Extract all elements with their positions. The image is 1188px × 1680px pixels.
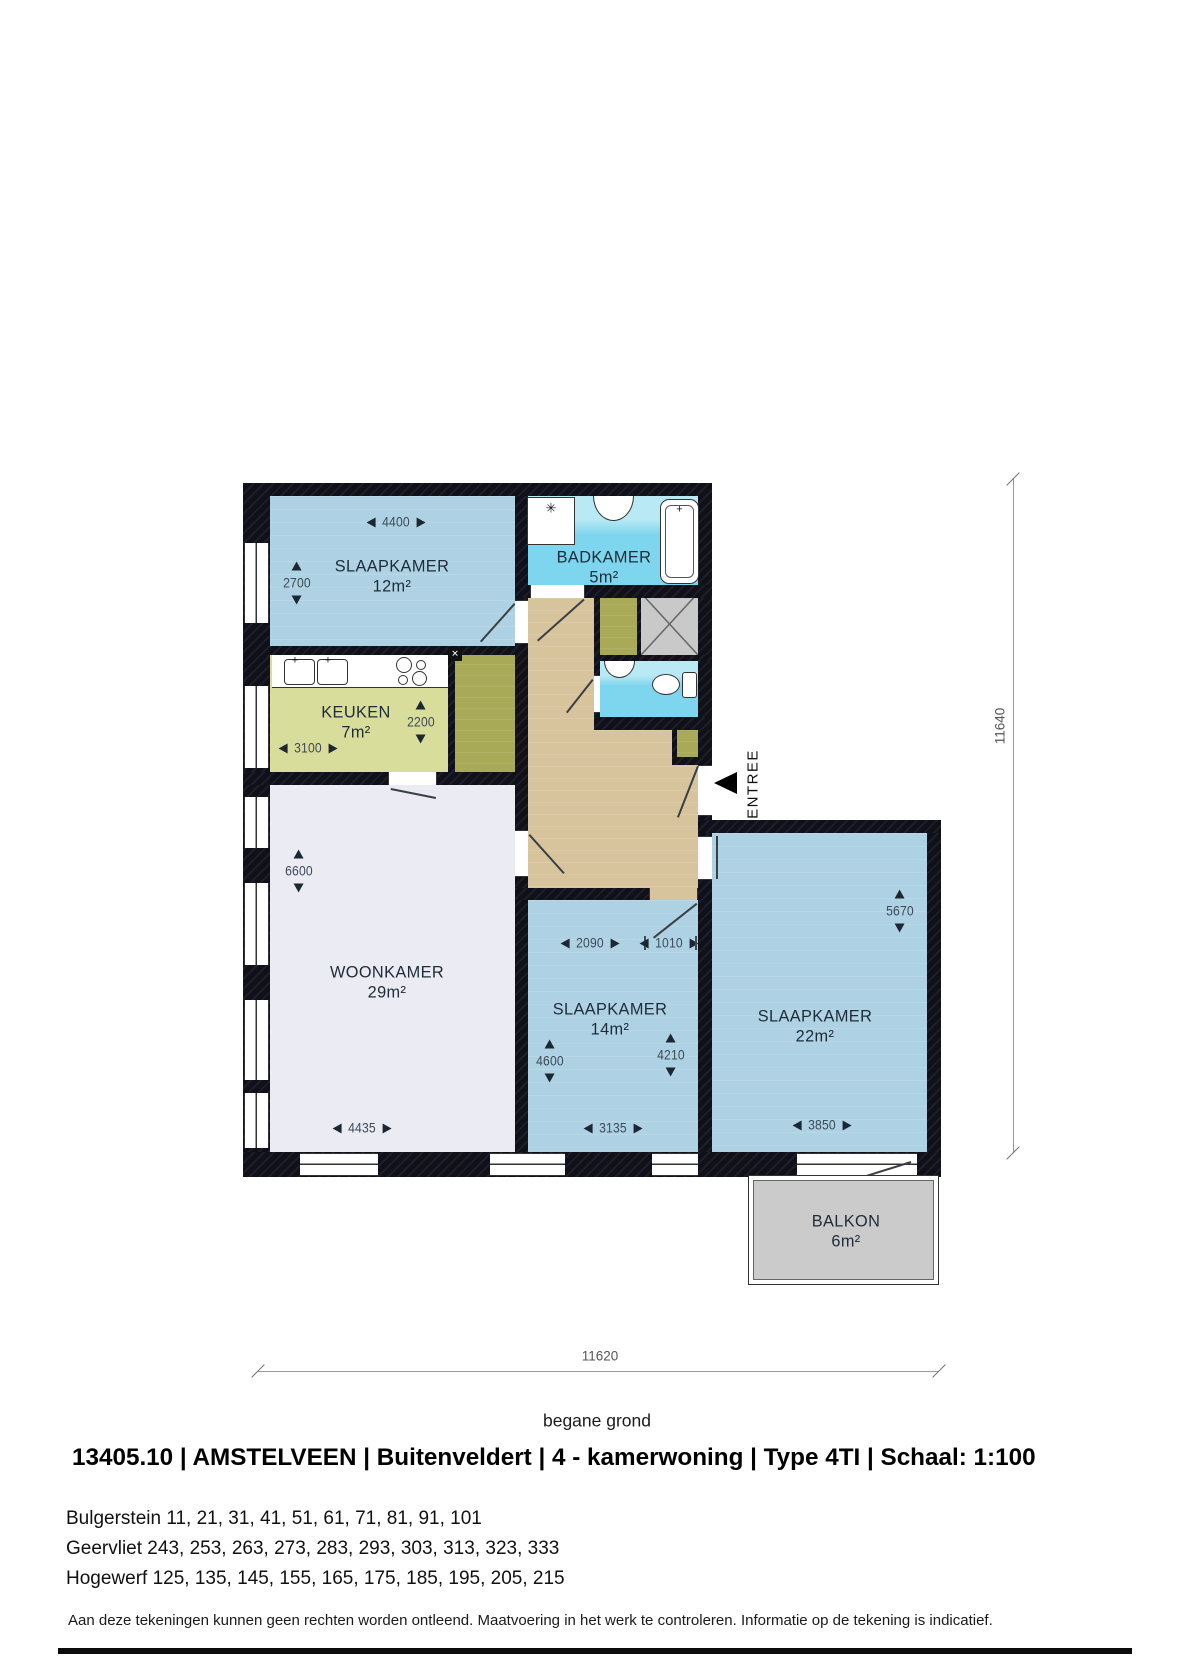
dim-arrow-up-icon bbox=[292, 562, 302, 571]
door-living bbox=[515, 830, 528, 877]
drawing-title: 13405.10 | AMSTELVEEN | Buitenveldert | … bbox=[72, 1444, 1121, 1472]
dim-arrow-left-icon bbox=[561, 938, 570, 948]
door-leaf bbox=[716, 836, 718, 879]
closet-fill bbox=[600, 593, 637, 655]
address-list: Bulgerstein 11, 21, 31, 41, 51, 61, 71, … bbox=[66, 1504, 565, 1594]
wall-smallcloset bbox=[672, 757, 712, 765]
dim-arrow-up-icon bbox=[895, 890, 905, 899]
dim-arrow-down-icon bbox=[294, 884, 304, 893]
dim-arrow-left-icon bbox=[584, 1123, 593, 1133]
dim-arrow-left-icon bbox=[793, 1120, 802, 1130]
entrance-label: ENTREE bbox=[745, 749, 762, 819]
stove-icon bbox=[398, 675, 408, 685]
wall-bed2-bed3 bbox=[698, 833, 712, 1152]
window bbox=[244, 1093, 269, 1148]
label-balcony: BALKON 6m² bbox=[810, 1212, 881, 1251]
dim-bedroom3-depth: 5670 bbox=[885, 890, 916, 933]
dim-arrow-down-icon bbox=[895, 924, 905, 933]
dim-arrow-up-icon bbox=[416, 701, 426, 710]
label-bedroom2: SLAAPKAMER 14m² bbox=[550, 1000, 669, 1039]
dim-total-depth: 11640 bbox=[993, 708, 1008, 745]
dim-bedroom2-depth-left: 4600 bbox=[535, 1040, 566, 1083]
dim-arrow-right-icon bbox=[328, 743, 337, 753]
label-bedroom3: SLAAPKAMER 22m² bbox=[755, 1007, 874, 1046]
dim-bedroom2-depth-right: 4210 bbox=[656, 1034, 687, 1077]
address-line: Hogewerf 125, 135, 145, 155, 165, 175, 1… bbox=[66, 1564, 565, 1594]
kitchen-sink-icon: + bbox=[317, 659, 348, 685]
wall-top bbox=[243, 483, 712, 496]
door-entrance bbox=[698, 765, 712, 816]
address-line: Bulgerstein 11, 21, 31, 41, 51, 61, 71, … bbox=[66, 1504, 565, 1534]
boiler-icon: ✕ bbox=[448, 647, 462, 661]
shaft-fill bbox=[641, 593, 698, 655]
dim-arrow-down-icon bbox=[416, 735, 426, 744]
dim-hall-passage: 1010 bbox=[640, 936, 699, 951]
dim-extension-line bbox=[695, 936, 697, 950]
label-living: WOONKAMER 29m² bbox=[328, 963, 447, 1002]
label-kitchen: KEUKEN 7m² bbox=[320, 703, 392, 742]
dim-line-total-width bbox=[258, 1371, 939, 1372]
dim-arrow-right-icon bbox=[689, 938, 698, 948]
dim-living-depth: 6600 bbox=[284, 850, 315, 893]
disclaimer-text: Aan deze tekeningen kunnen geen rechten … bbox=[68, 1612, 993, 1629]
dim-kitchen-depth: 2200 bbox=[406, 701, 437, 744]
wall-smallcloset bbox=[672, 730, 677, 757]
dim-arrow-up-icon bbox=[294, 850, 304, 859]
wall-right-outer bbox=[927, 833, 941, 1177]
room-bedroom3-fill bbox=[712, 833, 927, 1152]
wall-closet-shaft bbox=[637, 593, 641, 655]
toilet-icon bbox=[652, 674, 680, 695]
door-bedroom2 bbox=[649, 888, 698, 900]
window bbox=[300, 1153, 378, 1176]
window bbox=[244, 686, 269, 768]
dim-arrow-down-icon bbox=[292, 596, 302, 605]
entrance-arrow-icon bbox=[714, 772, 737, 794]
door-bedroom1 bbox=[515, 600, 528, 644]
floor-plan: ✳ + + + ✕ ENTREE SL bbox=[0, 0, 1188, 1460]
dim-arrow-down-icon bbox=[666, 1068, 676, 1077]
dim-arrow-left-icon bbox=[367, 517, 376, 527]
dim-arrow-up-icon bbox=[666, 1034, 676, 1043]
wall-toilet-bottom bbox=[594, 717, 712, 730]
bathtub-icon: + bbox=[660, 499, 699, 584]
dim-bedroom1-width: 4400 bbox=[367, 515, 426, 530]
door-toilet bbox=[594, 675, 600, 713]
window bbox=[244, 883, 269, 965]
dim-bedroom2-top: 2090 bbox=[561, 936, 620, 951]
dim-arrow-right-icon bbox=[416, 517, 425, 527]
dim-arrow-right-icon bbox=[610, 938, 619, 948]
dim-living-width: 4435 bbox=[333, 1121, 392, 1136]
stove-icon bbox=[396, 657, 412, 673]
dim-bedroom2-width: 3135 bbox=[584, 1121, 643, 1136]
floor-name: begane grond bbox=[543, 1411, 651, 1432]
dim-arrow-left-icon bbox=[279, 743, 288, 753]
address-line: Geervliet 243, 253, 263, 273, 283, 293, … bbox=[66, 1534, 565, 1564]
label-bedroom1: SLAAPKAMER 12m² bbox=[332, 557, 451, 596]
window bbox=[244, 1000, 269, 1080]
dim-arrow-left-icon bbox=[333, 1123, 342, 1133]
floorplan-page: ✳ + + + ✕ ENTREE SL bbox=[0, 0, 1188, 1680]
wall-kitchen-bottom bbox=[243, 772, 528, 785]
dim-arrow-up-icon bbox=[545, 1040, 555, 1049]
window bbox=[490, 1153, 565, 1176]
door-kitchen bbox=[388, 772, 437, 785]
dim-arrow-down-icon bbox=[545, 1074, 555, 1083]
window bbox=[652, 1153, 698, 1176]
label-bathroom: BADKAMER 5m² bbox=[555, 548, 654, 587]
dim-arrow-right-icon bbox=[382, 1123, 391, 1133]
wall-counter-right bbox=[448, 646, 455, 772]
window bbox=[244, 797, 269, 848]
wall-hall-bedroom2 bbox=[515, 888, 649, 900]
dim-line-total-depth bbox=[1013, 479, 1014, 1153]
shaft-cross-icon bbox=[641, 593, 698, 655]
stove-icon bbox=[412, 671, 427, 686]
dim-arrow-right-icon bbox=[633, 1123, 642, 1133]
kitchen-sink-icon: + bbox=[284, 659, 315, 685]
window bbox=[244, 543, 269, 623]
small-closet-fill bbox=[677, 730, 698, 757]
dim-kitchen-width: 3100 bbox=[279, 741, 338, 756]
dim-arrow-left-icon bbox=[640, 938, 649, 948]
wall-bedroom3-top bbox=[698, 820, 941, 833]
bottom-border-bar bbox=[58, 1648, 1132, 1654]
dim-total-width: 11620 bbox=[582, 1349, 619, 1364]
dim-bedroom1-depth: 2700 bbox=[282, 562, 313, 605]
stove-icon bbox=[416, 660, 426, 670]
closet-column-fill bbox=[455, 653, 515, 772]
dim-arrow-right-icon bbox=[842, 1120, 851, 1130]
wall-bed1-bottom bbox=[270, 646, 528, 655]
washer-icon: ✳ bbox=[527, 497, 575, 545]
dim-bedroom3-width: 3850 bbox=[793, 1118, 852, 1133]
toilet-tank bbox=[682, 672, 697, 698]
door-bathroom bbox=[530, 585, 585, 598]
door-bedroom3 bbox=[698, 836, 712, 880]
